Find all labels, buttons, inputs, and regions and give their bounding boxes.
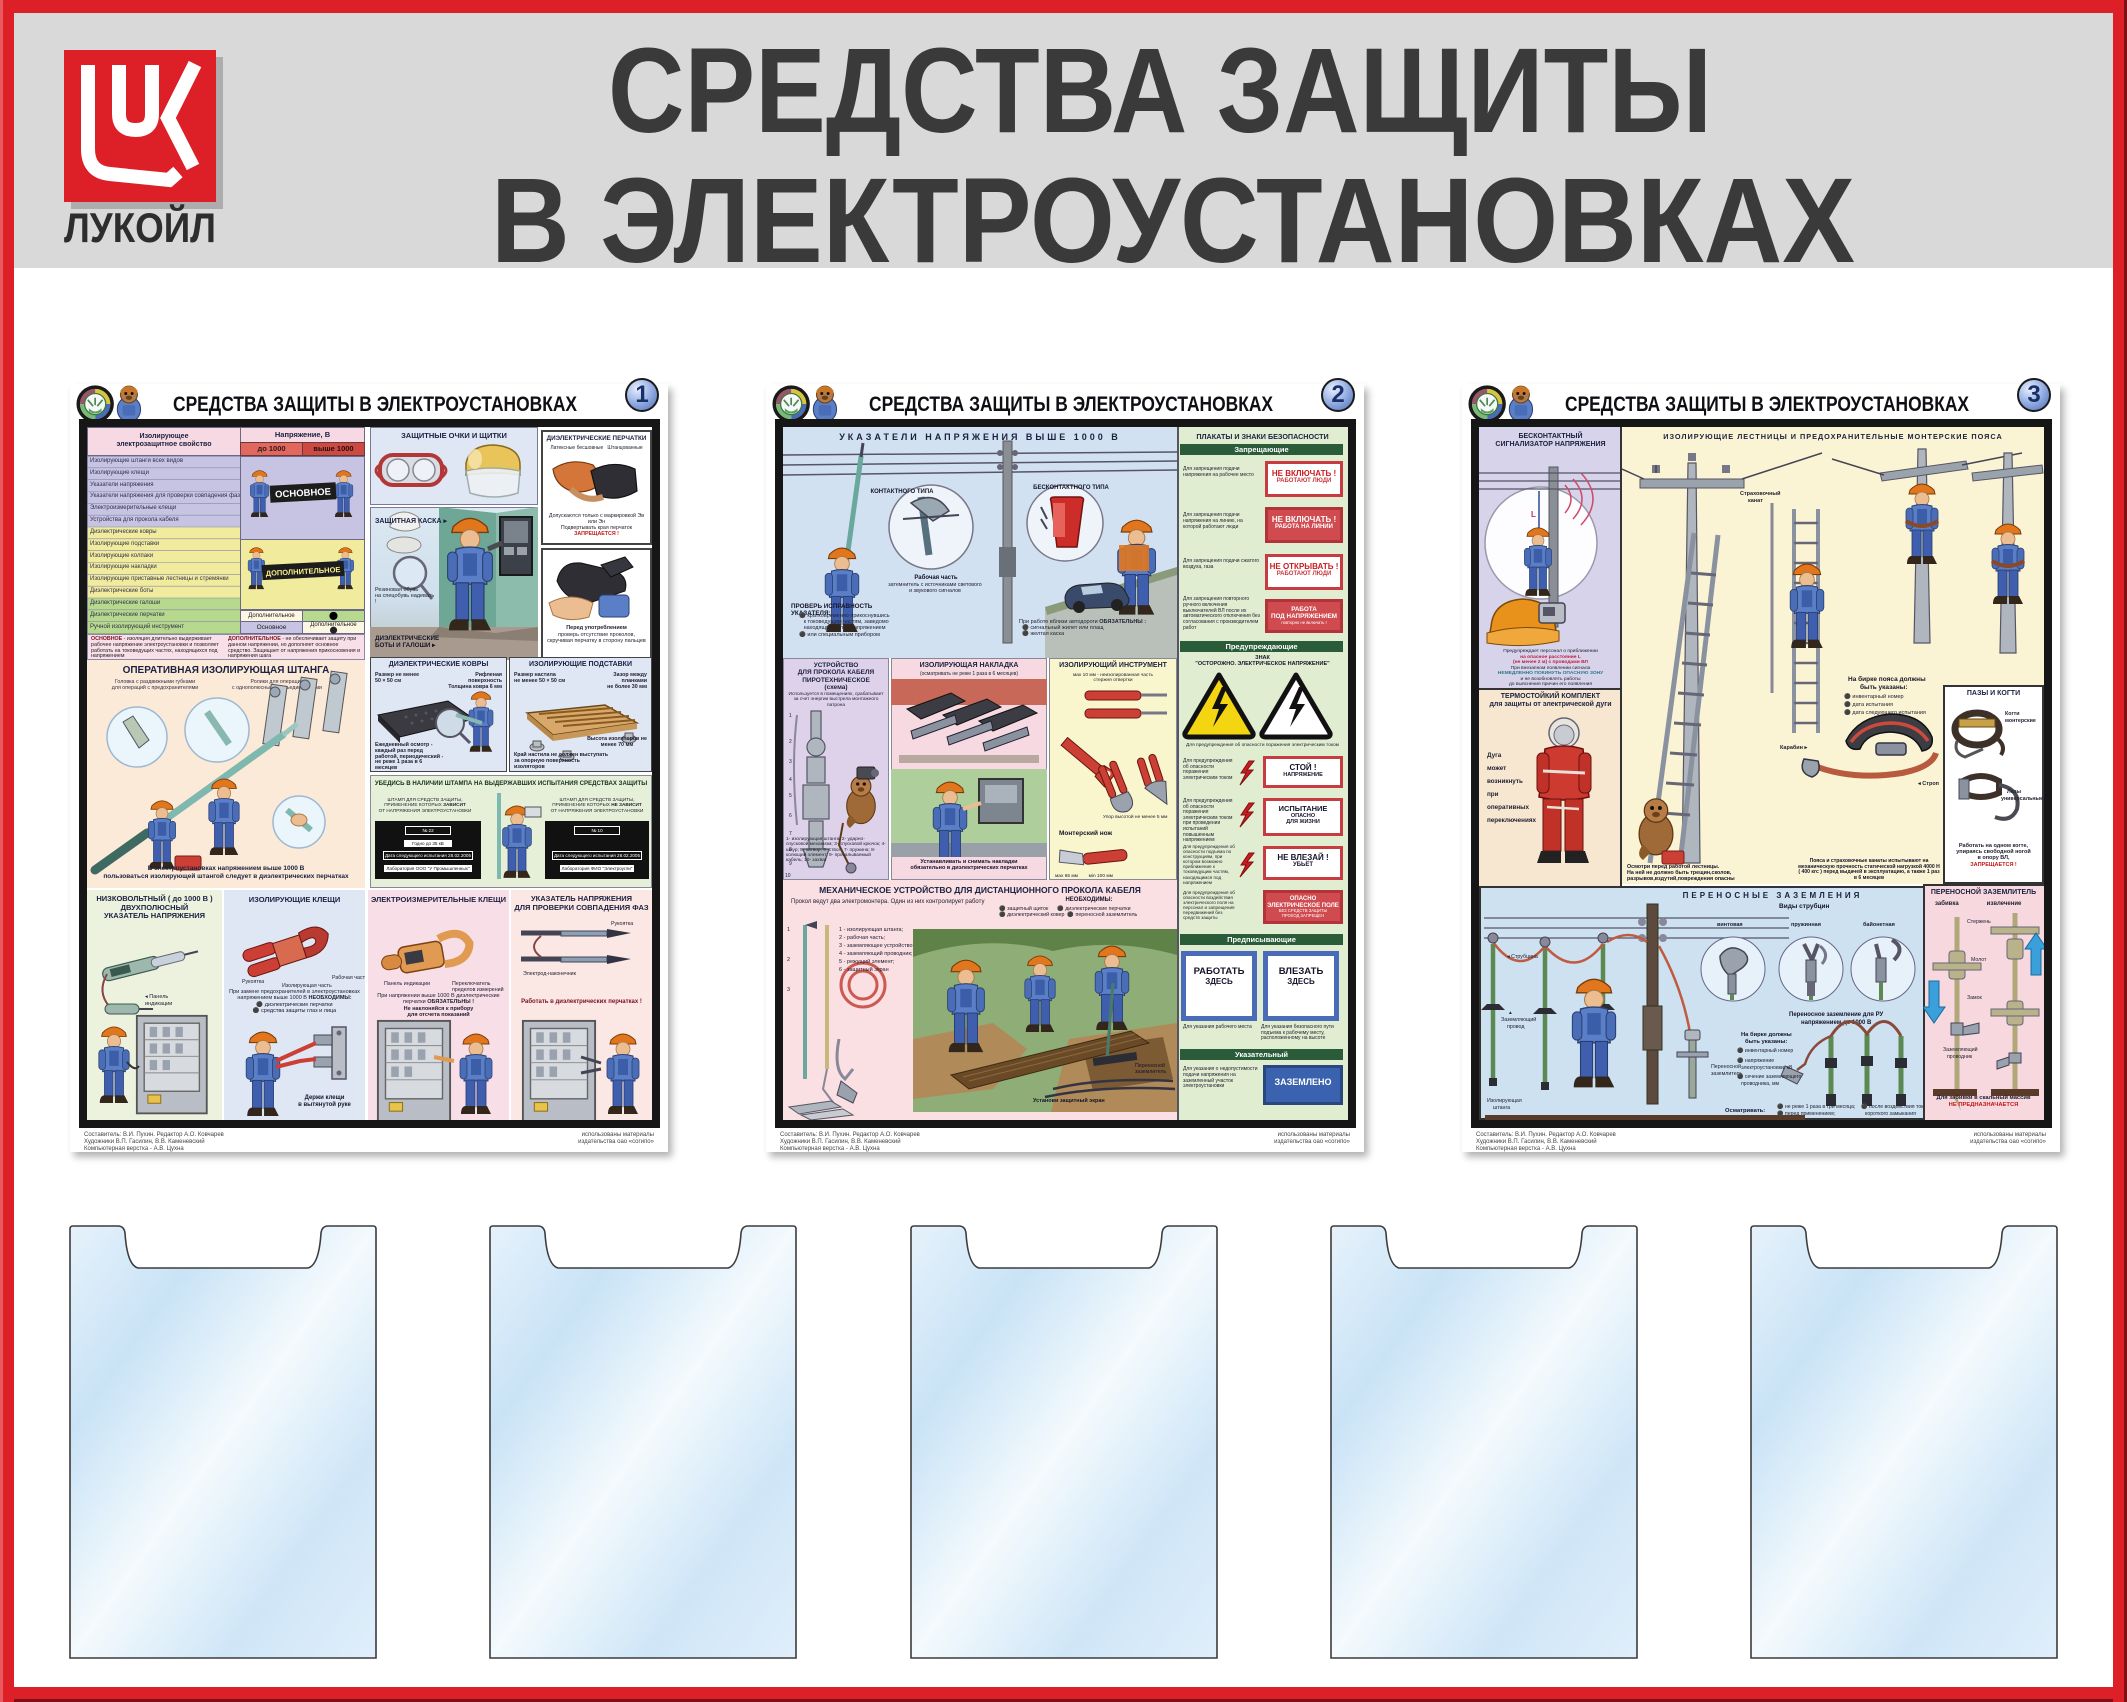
svg-text:напряжением до 1000 В: напряжением до 1000 В: [1801, 1020, 1872, 1026]
svg-text:⚫ после воздействия токов: ⚫ после воздействия токов: [1861, 1103, 1923, 1110]
svg-text:СРЕДСТВА ЗАЩИТЫ: СРЕДСТВА ЗАЩИТЫ: [608, 22, 1712, 158]
svg-text:Установи защитный экран: Установи защитный экран: [1033, 1097, 1105, 1104]
svg-text:На бирке должны: На бирке должны: [1741, 1031, 1792, 1038]
svg-text:СРЕДСТВА ЗАЩИТЫ В ЭЛЕКТРОУСТАН: СРЕДСТВА ЗАЩИТЫ В ЭЛЕКТРОУСТАНОВКАХ: [173, 392, 578, 416]
svg-text:винтовая: винтовая: [1717, 922, 1743, 928]
svg-text:В ЭЛЕКТРОУСТАНОВКАХ: В ЭЛЕКТРОУСТАНОВКАХ: [491, 152, 1855, 268]
svg-text:Переносное заземление для РУ: Переносное заземление для РУ: [1789, 1012, 1884, 1018]
svg-text:10: 10: [785, 873, 791, 879]
svg-text:монтерские: монтерские: [2005, 718, 2036, 724]
svg-text:Рукоятка: Рукоятка: [242, 979, 264, 985]
svg-text:⚫ перед применением;: ⚫ перед применением;: [1777, 1110, 1835, 1117]
svg-text:канат: канат: [1748, 498, 1763, 504]
svg-text:⚫ не реже 1 раза в три месяца;: ⚫ не реже 1 раза в три месяца;: [1777, 1103, 1855, 1110]
svg-text:Панель индикации: Панель индикации: [384, 981, 430, 987]
svg-text:1: 1: [787, 927, 790, 933]
svg-text:5: 5: [789, 793, 792, 799]
svg-text:⚫ сечение заземляющего: ⚫ сечение заземляющего: [1737, 1073, 1801, 1080]
svg-text:На бирке пояса должны: На бирке пояса должны: [1848, 675, 1926, 683]
svg-text:Страховочный: Страховочный: [1740, 490, 1781, 497]
svg-text:2: 2: [789, 739, 792, 745]
svg-text:Изолирующая: Изолирующая: [1487, 1098, 1522, 1104]
svg-text:5 - режущий элемент;: 5 - режущий элемент;: [839, 958, 895, 965]
svg-text:3: 3: [787, 987, 790, 993]
svg-text:◂ Строп: ◂ Строп: [1917, 781, 1939, 787]
svg-text:индикации: индикации: [145, 1001, 172, 1007]
svg-text:Монтерский нож: Монтерский нож: [1059, 829, 1113, 837]
svg-text:L: L: [1531, 510, 1536, 519]
svg-text:Переносной: Переносной: [1711, 1063, 1741, 1070]
svg-text:Замок: Замок: [1967, 995, 1982, 1001]
svg-text:короткого замыкания: короткого замыкания: [1865, 1111, 1916, 1117]
svg-text:⚫ дата следующего испытания: ⚫ дата следующего испытания: [1844, 709, 1926, 716]
svg-text:штанга: штанга: [1493, 1105, 1510, 1111]
svg-text:Лазы: Лазы: [2007, 789, 2021, 795]
svg-text:проводника, мм: проводника, мм: [1741, 1081, 1780, 1087]
svg-text:4: 4: [789, 777, 792, 783]
svg-text:Осматривать:: Осматривать:: [1725, 1108, 1765, 1114]
svg-text:Когти: Когти: [2005, 711, 2020, 717]
svg-text:Электрод-наконечник: Электрод-наконечник: [523, 971, 577, 977]
svg-text:3: 3: [789, 759, 792, 765]
svg-text:4 - заземляющий проводник;: 4 - заземляющий проводник;: [839, 950, 913, 957]
svg-text:6 - защитный экран: 6 - защитный экран: [839, 966, 889, 973]
svg-text:байонетная: байонетная: [1863, 921, 1895, 928]
svg-text:СРЕДСТВА ЗАЩИТЫ В ЭЛЕКТРОУСТАН: СРЕДСТВА ЗАЩИТЫ В ЭЛЕКТРОУСТАНОВКАХ: [869, 392, 1274, 416]
svg-text:быть указаны:: быть указаны:: [1745, 1038, 1787, 1045]
svg-text:◂ Струбцина: ◂ Струбцина: [1507, 954, 1538, 960]
svg-text:Заземляющий: Заземляющий: [1943, 1046, 1978, 1053]
svg-text:пружинная: пружинная: [1791, 922, 1821, 928]
svg-text:2 - рабочая часть;: 2 - рабочая часть;: [839, 935, 886, 941]
svg-text:⚫ инвентарный номер: ⚫ инвентарный номер: [1737, 1047, 1793, 1054]
svg-text:провод: провод: [1507, 1024, 1524, 1030]
svg-text:Виды струбцин: Виды струбцин: [1779, 902, 1829, 910]
svg-text:проводник: проводник: [1947, 1054, 1973, 1060]
svg-text:мах 65 мм мin 100 мм: мах 65 мм мin 100 мм: [1055, 873, 1113, 879]
svg-text:Рабочая часть: Рабочая часть: [332, 975, 365, 981]
svg-text:быть указаны:: быть указаны:: [1860, 683, 1908, 691]
svg-text:Заземляющий: Заземляющий: [1501, 1016, 1536, 1023]
svg-text:1 - изолирующая штанга;: 1 - изолирующая штанга;: [839, 927, 904, 933]
svg-text:◂ Панель: ◂ Панель: [145, 994, 168, 1000]
svg-text:2: 2: [787, 957, 790, 963]
svg-text:Карабин ▸: Карабин ▸: [1780, 744, 1809, 751]
svg-text:▴: ▴: [1509, 1010, 1512, 1016]
svg-text:6: 6: [789, 813, 792, 819]
svg-text:Стержень: Стержень: [1967, 919, 1991, 925]
svg-text:1: 1: [789, 713, 792, 719]
svg-text:пределов измерений: пределов измерений: [452, 986, 504, 993]
svg-text:Молот: Молот: [1971, 957, 1987, 963]
svg-text:Рукоятка: Рукоятка: [611, 921, 633, 927]
svg-text:СРЕДСТВА ЗАЩИТЫ В ЭЛЕКТРОУСТАН: СРЕДСТВА ЗАЩИТЫ В ЭЛЕКТРОУСТАНОВКАХ: [1565, 392, 1970, 416]
svg-text:⚫ инвентарный номер: ⚫ инвентарный номер: [1844, 693, 1904, 700]
svg-text:⚫ напряжение: ⚫ напряжение: [1737, 1057, 1774, 1064]
svg-text:3 - заземляющее устройство;: 3 - заземляющее устройство;: [839, 942, 915, 949]
svg-text:Переносной: Переносной: [1135, 1062, 1165, 1069]
svg-text:электроустановки, кВ: электроустановки, кВ: [1741, 1065, 1793, 1071]
svg-text:заземлитель: заземлитель: [1135, 1069, 1167, 1075]
svg-text:универсальные: универсальные: [2001, 796, 2043, 802]
svg-text:⚫ дата испытания: ⚫ дата испытания: [1844, 701, 1893, 708]
